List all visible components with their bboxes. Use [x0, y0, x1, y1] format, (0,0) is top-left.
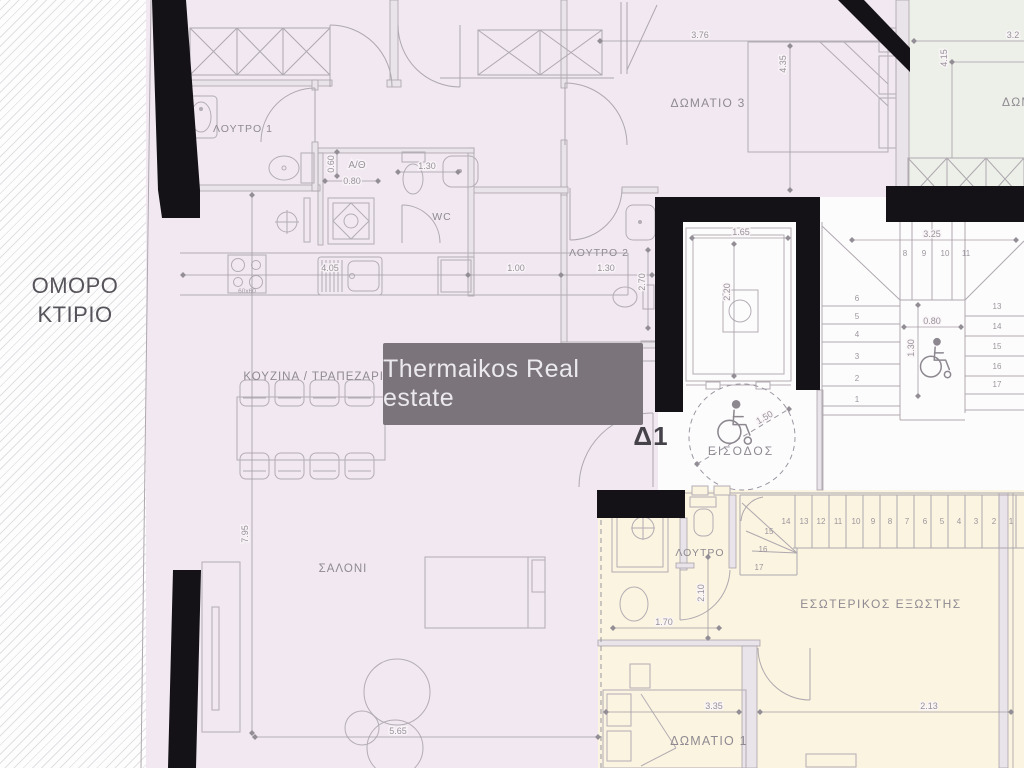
stair-number: 9	[871, 517, 876, 526]
stair-number: 13	[993, 302, 1002, 311]
label-entrance: ΕΙΣΟΔΟΣ	[708, 444, 774, 458]
watermark-banner: Thermaikos Real estate	[383, 343, 643, 425]
dim-hob: 60x60	[238, 288, 256, 295]
stair-number: 17	[755, 563, 764, 572]
dim-bedroom1-w: 3.35	[705, 701, 723, 711]
stair-number: 11	[834, 517, 843, 526]
stair-number: 12	[817, 517, 826, 526]
dim-kitchen: 4.05	[321, 263, 339, 273]
dim-bedroom3-h: 4.35	[778, 55, 788, 73]
label-boiler: A/Θ	[348, 160, 365, 171]
stair-number: 14	[782, 517, 791, 526]
dim-bathL-w: 1.70	[655, 617, 673, 627]
label-bathroom-lower: ΛΟΥΤΡΟ	[675, 547, 724, 559]
stair-number: 3	[974, 517, 979, 526]
label-bedroom1: ΔΩΜΑΤΙΟ 1	[670, 734, 748, 748]
stair-number: 2	[855, 374, 860, 383]
dim-hall: 1.00	[507, 263, 525, 273]
dim-green-h: 4.15	[939, 49, 949, 67]
dim-bath2-h: 2.70	[637, 273, 647, 291]
stair-number: 2	[992, 517, 997, 526]
stair-number: 7	[905, 517, 910, 526]
label-bedroom3: ΔΩΜΑΤΙΟ 3	[671, 96, 746, 110]
dim-green-w: 3.2	[1007, 30, 1020, 40]
dim-bedroom3-w: 3.76	[691, 30, 709, 40]
label-bathroom1: ΛΟΥΤΡΟ 1	[213, 123, 273, 135]
stair-number: 8	[903, 249, 908, 258]
dim-wc: 1.30	[418, 161, 436, 171]
stair-number: 15	[993, 342, 1002, 351]
label-kitchen: ΚΟΥΖΙΝΑ / ΤΡΑΠΕΖΑΡΙΑ	[243, 371, 392, 383]
dim-living-w: 5.65	[389, 726, 407, 736]
stair-number: 4	[855, 330, 860, 339]
stair-number: 9	[922, 249, 927, 258]
stair-number: 6	[855, 294, 860, 303]
label-balcony: ΕΣΩΤΕΡΙΚΟΣ ΕΞΩΣΤΗΣ	[800, 597, 961, 611]
stair-number: 15	[765, 527, 774, 536]
stair-number: 1	[855, 395, 860, 404]
stair-number: 10	[941, 249, 950, 258]
stair-number: 4	[957, 517, 962, 526]
stair-number: 8	[888, 517, 893, 526]
dim-bath2-w: 1.30	[597, 263, 615, 273]
watermark-text: Thermaikos Real estate	[383, 355, 643, 413]
dim-living-h: 7.95	[240, 525, 250, 543]
stair-number: 16	[993, 362, 1002, 371]
label-bedroom-partial: ΔΩΜ	[1002, 95, 1024, 109]
stair-number: 11	[962, 249, 971, 258]
dim-landing-w: 0.80	[923, 316, 941, 326]
dim-elev-w: 1.65	[732, 227, 750, 237]
dim-stair-w: 3.25	[923, 229, 941, 239]
label-wc: WC	[432, 211, 452, 223]
stair-number: 17	[993, 380, 1002, 389]
unit-label: Δ1	[633, 421, 668, 451]
dim-bathL-h: 2.10	[696, 584, 706, 602]
dim-boiler-d: 0.60	[326, 155, 336, 173]
label-living: ΣΑΛΟΝΙ	[319, 563, 368, 575]
stair-number: 5	[855, 312, 860, 321]
stair-number: 3	[855, 352, 860, 361]
dim-elev-h: 2.20	[722, 283, 732, 301]
stair-number: 10	[852, 517, 861, 526]
stair-number: 16	[759, 545, 768, 554]
dim-landing-h: 1.30	[906, 339, 916, 357]
floor-plan-page: ΟΜΟΡΟ ΚΤΙΡΙΟ	[0, 0, 1024, 768]
dim-room2-w: 2.13	[920, 701, 938, 711]
dim-boiler-w: 0.80	[343, 176, 361, 186]
stair-number: 5	[940, 517, 945, 526]
stair-number: 13	[800, 517, 809, 526]
stair-number: 6	[923, 517, 928, 526]
label-bathroom2: ΛΟΥΤΡΟ 2	[569, 247, 629, 259]
stair-number: 14	[993, 322, 1002, 331]
